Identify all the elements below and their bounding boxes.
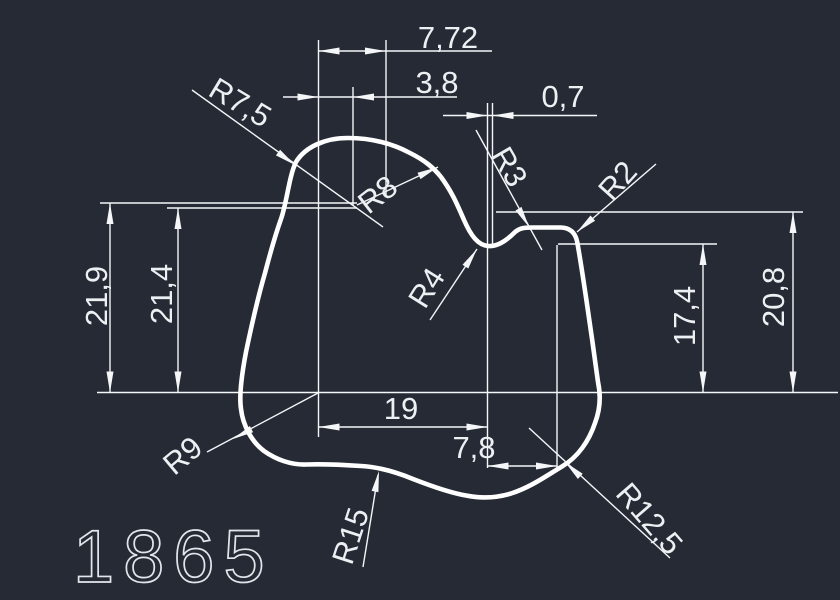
linear-dimension-labels: 7,72 3,8 0,7 21,9 21,4 17,4 20,8 19 7,8 [79,20,791,465]
dim-label-7-72: 7,72 [418,20,478,55]
cad-drawing-canvas: 7,72 3,8 0,7 21,9 21,4 17,4 20,8 19 7,8 … [0,0,840,600]
dim-label-19: 19 [384,391,418,426]
dim-label-21-4: 21,4 [144,264,179,324]
radius-label-r8: R8 [351,169,404,221]
extension-lines [97,40,838,470]
dim-label-17-4: 17,4 [667,286,702,346]
dim-label-21-9: 21,9 [79,266,114,326]
radius-label-r15: R15 [325,503,376,568]
radius-leader-lines [192,90,670,567]
radius-labels: R7,5 R8 R3 R2 R4 R9 R15 R12,5 [156,71,689,569]
radius-label-r12-5: R12,5 [609,476,690,561]
part-number: 1865 [73,515,274,598]
dim-label-7-8: 7,8 [452,430,495,465]
dimension-lines [110,51,793,466]
radius-label-r4: R4 [401,262,452,314]
technical-drawing: 7,72 3,8 0,7 21,9 21,4 17,4 20,8 19 7,8 … [0,0,840,600]
dim-label-0-7: 0,7 [541,79,584,114]
dimension-arrowheads [107,48,797,493]
radius-label-r9: R9 [156,429,209,481]
radius-label-r2: R2 [591,154,644,207]
dim-label-3-8: 3,8 [415,65,458,100]
dim-label-20-8: 20,8 [756,267,791,327]
